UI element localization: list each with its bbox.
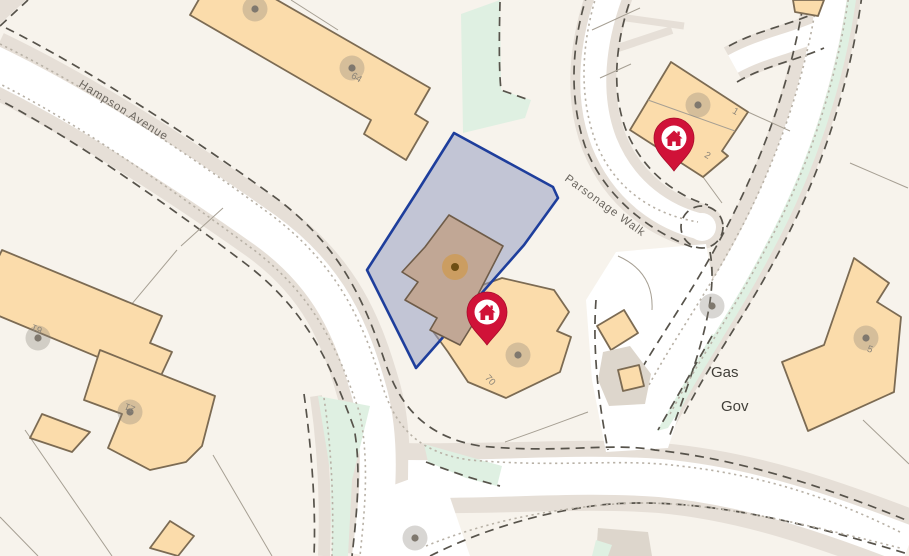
selected-building-dot bbox=[442, 254, 468, 280]
area-label-gas: Gas bbox=[711, 364, 739, 381]
map-svg[interactable]: Hampson Avenue Parsonage Walk 64 61 21 7… bbox=[0, 0, 909, 556]
building-small-2 bbox=[618, 365, 644, 391]
culdesac-bulb bbox=[688, 213, 716, 241]
map-canvas[interactable]: Hampson Avenue Parsonage Walk 64 61 21 7… bbox=[0, 0, 909, 556]
area-label-gov: Gov bbox=[721, 398, 749, 415]
